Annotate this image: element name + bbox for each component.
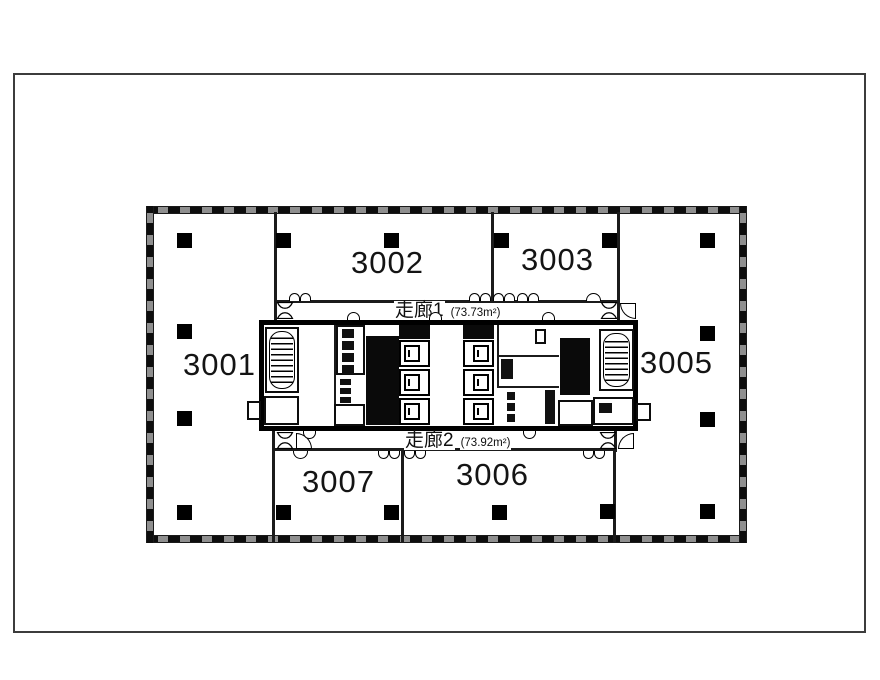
corridor-2-name: 走廊2 bbox=[404, 431, 455, 450]
wc-stall-column bbox=[545, 390, 555, 424]
boundary-wall-right bbox=[739, 206, 747, 543]
structural-column bbox=[602, 233, 617, 248]
structural-column bbox=[177, 411, 192, 426]
floorplan-screen: 3001 3002 3003 3005 3006 3007 走廊1 (73.73… bbox=[0, 0, 880, 680]
structural-column bbox=[700, 233, 715, 248]
elevator-car bbox=[463, 398, 494, 425]
structural-column bbox=[177, 233, 192, 248]
core-room-ws bbox=[334, 404, 365, 426]
door-swing-arc bbox=[429, 312, 442, 320]
elevator-cab bbox=[473, 403, 489, 420]
door-swing-arc bbox=[542, 312, 555, 320]
door-swing-arc bbox=[493, 293, 504, 301]
stairwell-west bbox=[265, 327, 299, 393]
room-label-3005: 3005 bbox=[640, 347, 713, 378]
wall-3007-3006 bbox=[401, 450, 404, 543]
corridor-2-label: 走廊2 (73.92m²) bbox=[404, 431, 511, 450]
structural-column bbox=[384, 233, 399, 248]
structural-column bbox=[276, 233, 291, 248]
elevator-shaft-wall bbox=[399, 325, 430, 339]
core-stub-east bbox=[636, 403, 651, 421]
structural-column bbox=[600, 504, 615, 519]
door-swing-arc bbox=[289, 293, 300, 301]
door-swing-arc bbox=[586, 293, 601, 301]
door-swing-arc bbox=[528, 293, 539, 301]
double-door-icon bbox=[276, 302, 294, 319]
structural-column bbox=[492, 505, 507, 520]
elevator-car bbox=[463, 340, 494, 367]
sink-fixture bbox=[340, 388, 351, 394]
elevator-shaft-wall bbox=[463, 325, 494, 339]
toilet-fixture bbox=[342, 341, 354, 350]
sink-counter bbox=[507, 414, 515, 422]
stair-rail bbox=[269, 331, 295, 389]
structural-column bbox=[494, 233, 509, 248]
structural-column bbox=[177, 324, 192, 339]
elevator-cab bbox=[404, 345, 420, 362]
door-swing-arc bbox=[300, 293, 311, 301]
room-label-3001: 3001 bbox=[183, 349, 256, 380]
shaft-block-east bbox=[560, 338, 590, 395]
duct-box bbox=[535, 329, 546, 344]
core-room-sw bbox=[264, 396, 299, 425]
core-room-se-fixture bbox=[599, 403, 612, 413]
door-swing-arc bbox=[517, 293, 528, 301]
elevator-cab bbox=[473, 345, 489, 362]
door-swing-arc bbox=[347, 312, 360, 320]
toilet-fixture bbox=[342, 353, 354, 362]
stairwell-east bbox=[599, 329, 634, 391]
room-label-3003: 3003 bbox=[521, 244, 594, 275]
sink-fixture bbox=[340, 397, 351, 403]
boundary-wall-left bbox=[146, 206, 154, 543]
structural-column bbox=[700, 504, 715, 519]
double-door-icon bbox=[276, 432, 294, 449]
corridor-1-label: 走廊1 (73.73m²) bbox=[394, 301, 501, 320]
elevator-cab bbox=[404, 403, 420, 420]
room-label-3002: 3002 bbox=[351, 247, 424, 278]
wc-fixture-mid bbox=[501, 359, 513, 379]
door-swing-arc bbox=[504, 293, 515, 301]
structural-column bbox=[700, 412, 715, 427]
stair-rail bbox=[603, 333, 630, 387]
double-door-icon bbox=[599, 432, 617, 449]
core-room-sb bbox=[558, 400, 593, 426]
toilet-fixture bbox=[342, 365, 354, 374]
core-wall-mid-h2 bbox=[497, 386, 559, 388]
sink-fixture bbox=[340, 379, 351, 385]
double-door-icon bbox=[600, 302, 618, 319]
corridor-1-area: (73.73m²) bbox=[450, 306, 502, 320]
room-label-3007: 3007 bbox=[302, 466, 375, 497]
boundary-wall-top bbox=[146, 206, 747, 214]
elevator-car bbox=[399, 340, 430, 367]
elevator-car bbox=[399, 398, 430, 425]
sink-counter bbox=[507, 392, 515, 400]
room-label-3006: 3006 bbox=[456, 459, 529, 490]
core-stub-west bbox=[247, 401, 261, 420]
door-swing-arc bbox=[469, 293, 480, 301]
sink-counter bbox=[507, 403, 515, 411]
core-wall-mid-h1 bbox=[497, 355, 559, 357]
structural-column bbox=[384, 505, 399, 520]
elevator-car bbox=[463, 369, 494, 396]
wall-3001-3007 bbox=[272, 430, 275, 543]
elevator-car bbox=[399, 369, 430, 396]
boundary-wall-bottom bbox=[146, 535, 747, 543]
toilet-fixture bbox=[342, 329, 354, 338]
wall-3006-3005 bbox=[613, 450, 616, 543]
structural-column bbox=[700, 326, 715, 341]
wall-3002-3003 bbox=[491, 212, 494, 302]
structural-column bbox=[177, 505, 192, 520]
corridor-2-area: (73.92m²) bbox=[460, 436, 512, 450]
door-swing-arc bbox=[480, 293, 491, 301]
shaft-block-west bbox=[366, 336, 399, 425]
elevator-cab bbox=[473, 374, 489, 391]
structural-column bbox=[276, 505, 291, 520]
elevator-cab bbox=[404, 374, 420, 391]
